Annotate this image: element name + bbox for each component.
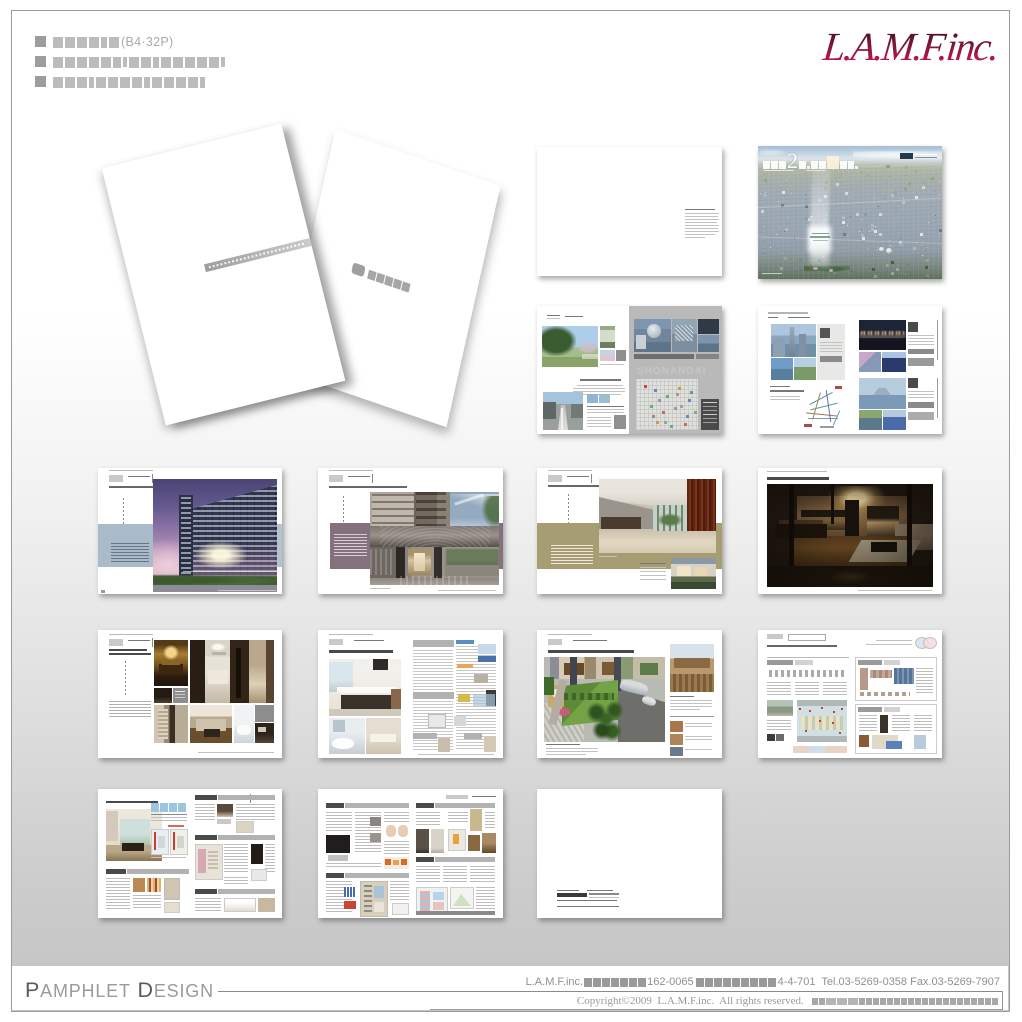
svg-text:L.A.M.F.inc.: L.A.M.F.inc. bbox=[820, 24, 1002, 69]
